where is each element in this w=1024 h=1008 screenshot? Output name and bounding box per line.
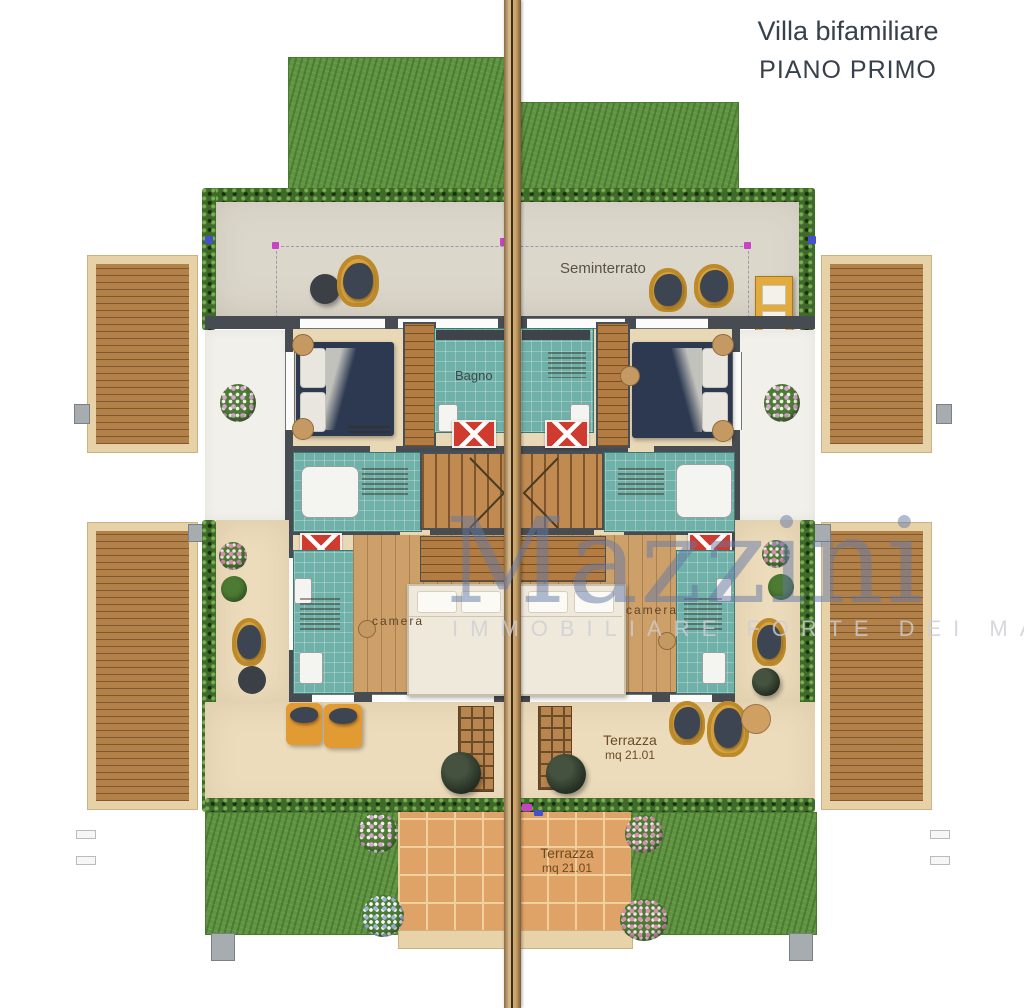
lounger-cushion [329, 708, 357, 724]
flower-bush-br-1 [625, 815, 663, 853]
round-table-dark [310, 274, 340, 304]
toilet [702, 652, 726, 684]
terrazza-name: Terrazza [512, 845, 622, 861]
tiled-terrace-left [398, 812, 508, 932]
round-table-tan [741, 704, 771, 734]
window-top-4 [636, 318, 708, 329]
deck-planks [96, 264, 189, 444]
illegible-room-text [348, 426, 390, 436]
hedge-upper-right [799, 188, 815, 330]
hedge-upper-left [202, 188, 216, 330]
wall-stub-right-low2 [930, 856, 950, 865]
terrazza-upper-label: Terrazza mq 21.01 [580, 732, 680, 762]
wall-stub-right-low1 [930, 830, 950, 839]
round-stool [620, 366, 640, 386]
camera-label-left: camera [372, 614, 424, 628]
terrazza-area: mq 21.01 [580, 748, 680, 762]
wall-stub-left-low2 [76, 856, 96, 865]
wicker-chair-upper-right-2 [694, 264, 734, 308]
page-title: Villa bifamiliare [742, 16, 954, 47]
terrazza-name: Terrazza [580, 732, 680, 748]
bed-throw [326, 348, 356, 430]
deck-planks [96, 531, 189, 801]
vanity-counter [436, 330, 504, 340]
bedside-table [712, 334, 734, 356]
bagno-label: Bagno [455, 368, 493, 383]
flower-bush-bl-2 [362, 895, 404, 937]
flower-bush-br-2 [620, 899, 668, 941]
marker-dot-blue-right [808, 236, 816, 244]
sun-lounger-2 [324, 704, 362, 748]
wicker-chair-terrace-2 [707, 701, 749, 757]
illegible-room-text [300, 598, 340, 632]
marker-dot-blue-left [205, 236, 213, 244]
deck-upper-right [821, 255, 932, 453]
plant-dark-left [441, 752, 481, 794]
bedside-table [712, 420, 734, 442]
garden-bush [219, 542, 247, 570]
sun-lounger-1 [286, 703, 322, 745]
chair-cushion [343, 263, 373, 299]
terrazza-lower-label: Terrazza mq 21.01 [512, 845, 622, 875]
marker-dot-magenta-left [272, 242, 279, 249]
garden-top-left [288, 57, 512, 192]
chair-cushion [237, 625, 261, 659]
plant-pot [752, 668, 780, 696]
red-rug-bath-right [545, 420, 589, 448]
floorplan-canvas: Seminterrato Bagno [0, 0, 1024, 1008]
window-left-1 [285, 352, 295, 430]
side-roof-left [205, 330, 289, 520]
wicker-chair-side-left [232, 618, 266, 666]
bedside-table [292, 334, 314, 356]
seminterrato-label: Seminterrato [560, 260, 646, 277]
deck-upper-left [87, 255, 198, 453]
red-rug-bath-left [452, 420, 496, 448]
pillar-stub-bottom-right [789, 933, 813, 961]
deck-planks [830, 264, 923, 444]
chair-cushion [700, 270, 728, 302]
wall-stub-left-low1 [76, 830, 96, 839]
toilet [299, 652, 323, 684]
pillar-stub-bottom-left [211, 933, 235, 961]
round-table-dark-left [238, 666, 266, 694]
flower-bush-left [220, 384, 256, 422]
garden-bush [221, 576, 247, 602]
deck-lower-left [87, 522, 198, 810]
wicker-chair-upper-left [337, 255, 379, 307]
vanity-counter [522, 330, 590, 340]
garden-top-right [519, 102, 739, 192]
illegible-room-text [362, 468, 408, 496]
cabinet-cushion [762, 285, 786, 305]
chair-cushion [714, 708, 742, 748]
window-right-1 [732, 352, 742, 430]
dimension-dash-left [276, 246, 277, 318]
title-block: Villa bifamiliare PIANO PRIMO [742, 16, 954, 85]
illegible-room-text [548, 352, 586, 378]
wall-stub-left-upper [74, 404, 90, 424]
page-subtitle: PIANO PRIMO [742, 56, 954, 85]
bedside-table [292, 418, 314, 440]
wardrobe-left [403, 322, 436, 448]
flower-bush-right [764, 384, 800, 422]
flower-bush-bl-1 [358, 813, 398, 853]
marker-dot-magenta-right [744, 242, 751, 249]
wall-stub-right-upper [936, 404, 952, 424]
marker-dot-magenta-bottom [522, 804, 532, 811]
shower-tray-left [301, 466, 359, 518]
dimension-dash-right [748, 246, 749, 318]
bed-throw [672, 348, 702, 432]
marker-dot-blue-bottom [534, 810, 543, 816]
terrazza-area: mq 21.01 [512, 861, 622, 875]
lounger-cushion [290, 707, 318, 723]
window-top-1 [300, 318, 385, 329]
watermark-brand: Mazzini [445, 502, 926, 620]
watermark-subtitle: IMMOBILIARE FORTE DEI MARMI [452, 616, 1024, 642]
chair-cushion [654, 274, 682, 306]
wicker-chair-upper-right-1 [649, 268, 687, 312]
